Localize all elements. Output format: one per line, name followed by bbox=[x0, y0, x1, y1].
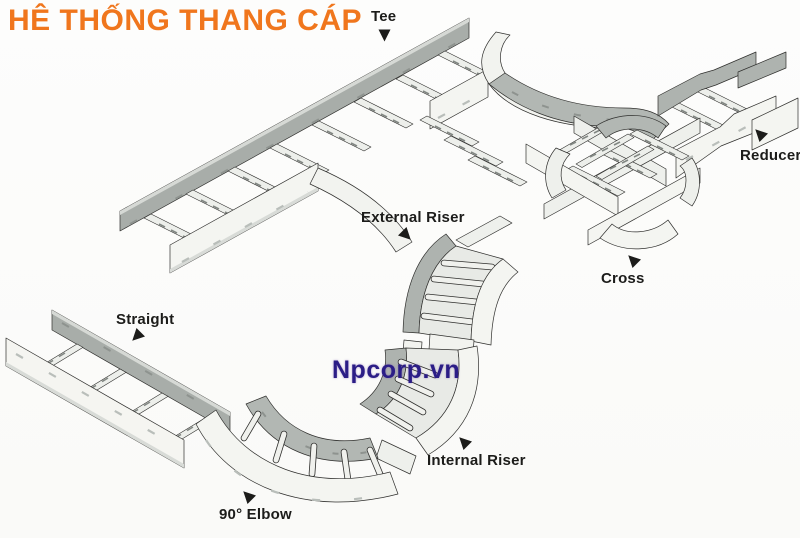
label-90-elbow: 90° Elbow bbox=[219, 506, 292, 523]
pointer-arrow-icon bbox=[377, 28, 392, 43]
cross-component-drawing bbox=[526, 116, 700, 249]
straight-component-drawing bbox=[6, 310, 230, 468]
label-cross: Cross bbox=[601, 270, 645, 287]
annotation-tee: Tee bbox=[371, 8, 396, 25]
annotation-90-elbow: 90° Elbow bbox=[219, 506, 292, 523]
label-reducer: Reducer bbox=[740, 147, 800, 164]
cable-ladder-illustration bbox=[0, 0, 800, 538]
label-external-riser: External Riser bbox=[361, 209, 465, 226]
label-tee: Tee bbox=[371, 8, 396, 25]
annotation-internal-riser: Internal Riser bbox=[427, 452, 526, 469]
annotation-reducer: Reducer bbox=[740, 147, 800, 164]
annotation-straight: Straight bbox=[116, 311, 174, 328]
diagram-canvas: HÊ THỐNG THANG CÁP Tee Reducer External … bbox=[0, 0, 800, 538]
annotation-external-riser: External Riser bbox=[361, 209, 465, 226]
label-internal-riser: Internal Riser bbox=[427, 452, 526, 469]
label-straight: Straight bbox=[116, 311, 174, 328]
tee-component-drawing bbox=[120, 18, 497, 273]
watermark: Npcorp.vn bbox=[332, 356, 460, 385]
page-title: HÊ THỐNG THANG CÁP bbox=[8, 4, 362, 38]
annotation-cross: Cross bbox=[601, 270, 645, 287]
